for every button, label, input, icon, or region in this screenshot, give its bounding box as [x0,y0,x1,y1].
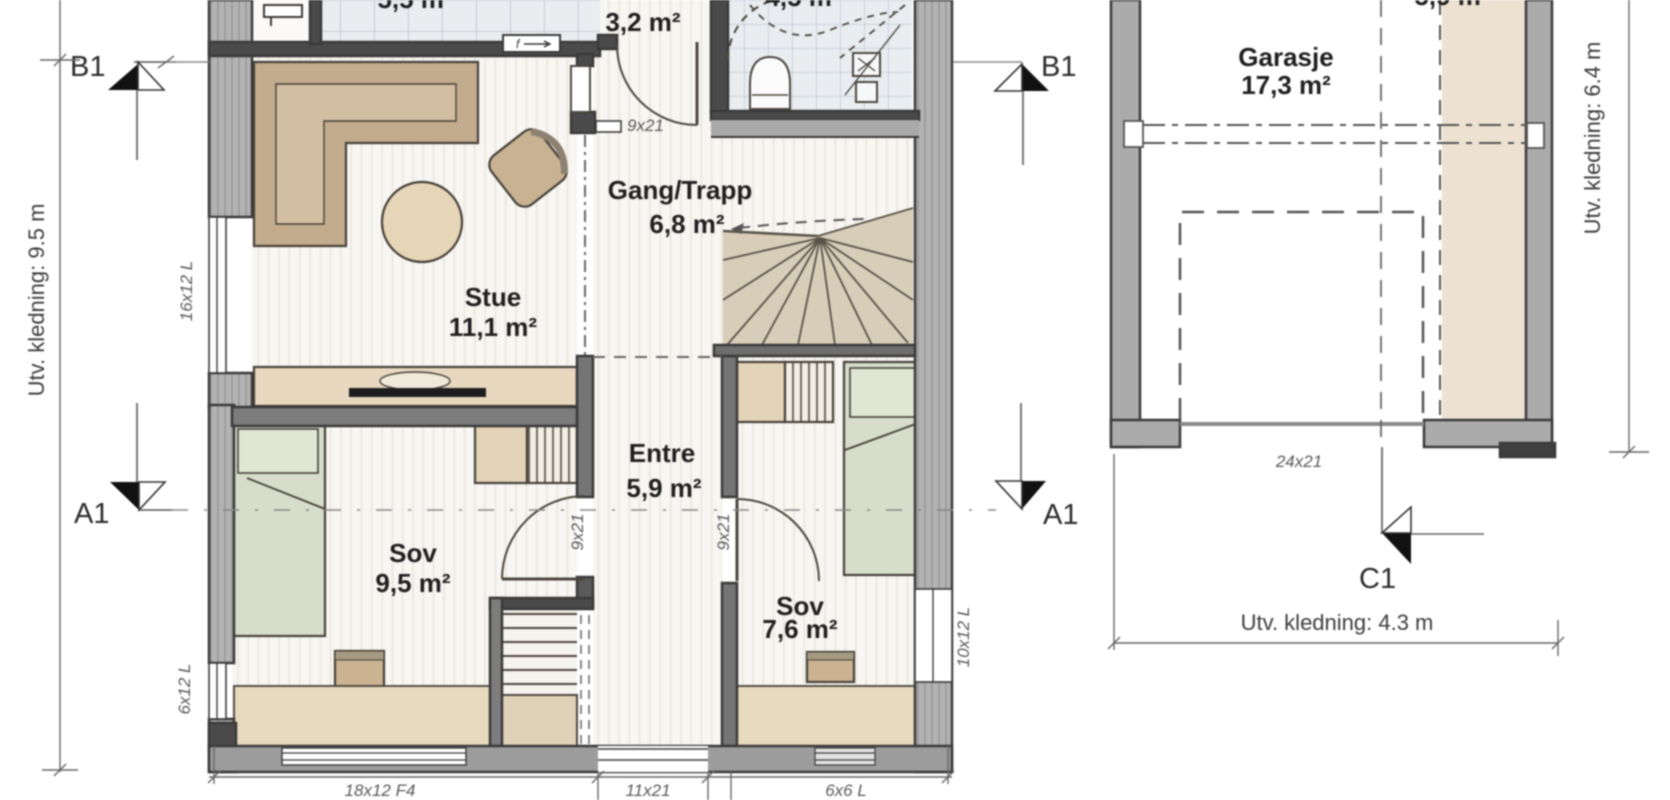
svg-text:Utv. kledning: 6.4 m: Utv. kledning: 6.4 m [1580,42,1605,235]
svg-text:11,1 m²: 11,1 m² [449,312,538,342]
svg-text:18x12 F4: 18x12 F4 [345,781,416,800]
svg-text:Sov: Sov [389,538,437,568]
svg-text:Garasje: Garasje [1238,42,1333,72]
svg-text:B1: B1 [1041,51,1076,83]
svg-text:Stue: Stue [465,282,521,312]
svg-text:6x6 L: 6x6 L [825,781,867,800]
svg-text:5,5 m²: 5,5 m² [377,0,452,14]
svg-text:Entre: Entre [629,438,695,468]
svg-text:9,5 m²: 9,5 m² [375,568,450,598]
svg-text:9x21: 9x21 [627,116,664,135]
svg-text:C1: C1 [1359,563,1396,595]
svg-text:6,8 m²: 6,8 m² [649,209,724,239]
svg-text:A1: A1 [1043,499,1078,531]
svg-text:4,5 m²: 4,5 m² [765,0,840,12]
svg-text:Utv. kledning: 9.5 m: Utv. kledning: 9.5 m [24,204,49,397]
svg-text:7,6 m²: 7,6 m² [762,614,837,644]
svg-text:3,2 m²: 3,2 m² [605,7,680,37]
svg-text:Utv. kledning: 4.3 m: Utv. kledning: 4.3 m [1241,610,1434,635]
svg-text:10x12 L: 10x12 L [954,607,973,668]
svg-text:5,9 m²: 5,9 m² [626,473,701,503]
svg-text:11x21: 11x21 [625,781,670,800]
svg-text:6x12 L: 6x12 L [175,663,194,714]
svg-text:9x21: 9x21 [714,514,733,551]
svg-text:9x21: 9x21 [568,514,587,551]
svg-text:5,9 m²: 5,9 m² [1414,0,1489,11]
svg-text:Gang/Trapp: Gang/Trapp [608,175,752,205]
svg-text:A1: A1 [74,498,109,530]
svg-text:24x21: 24x21 [1275,452,1322,471]
svg-text:16x12 L: 16x12 L [177,261,196,322]
svg-text:B1: B1 [70,51,105,83]
svg-text:17,3 m²: 17,3 m² [1241,70,1331,100]
